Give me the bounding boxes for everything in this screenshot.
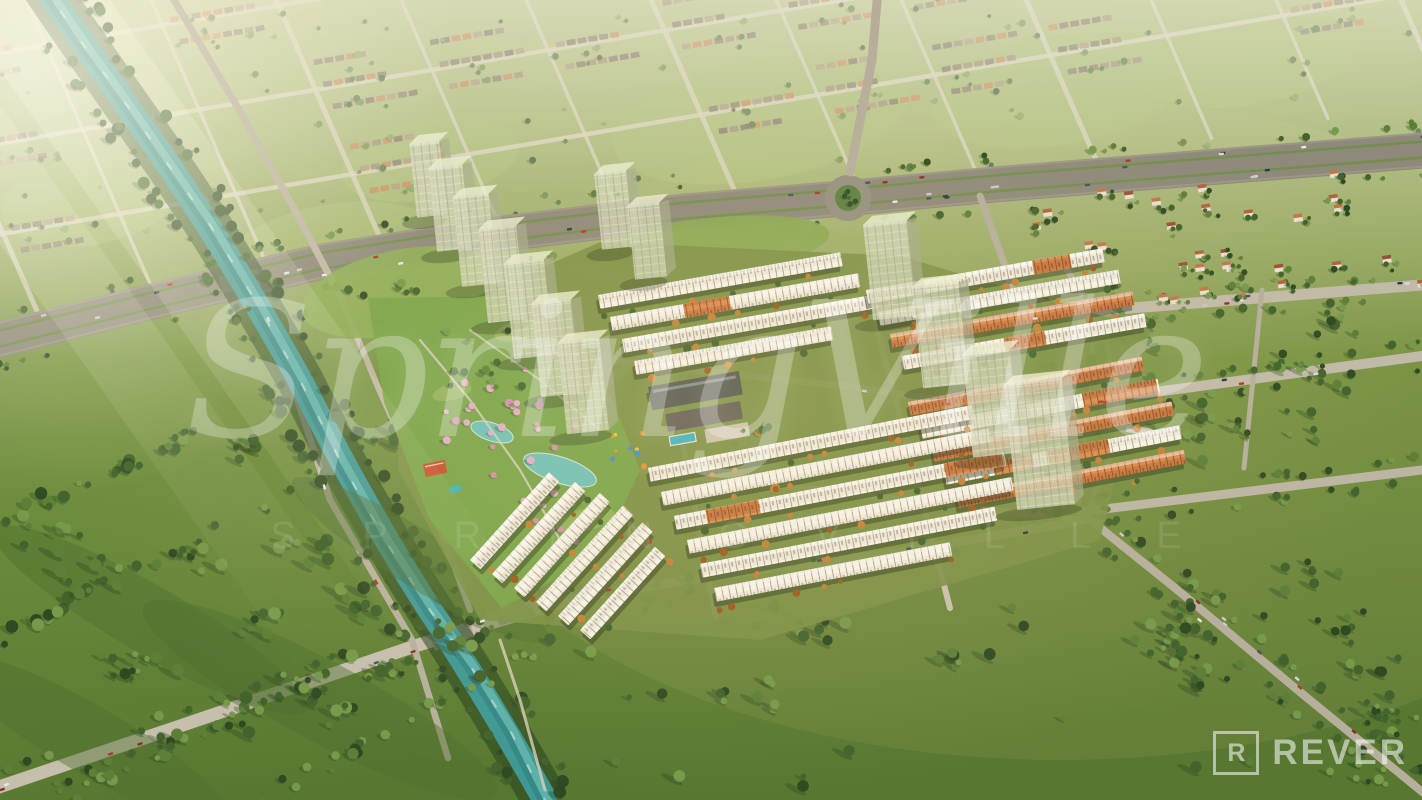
aerial-scene xyxy=(0,0,1422,800)
lighting-effects xyxy=(0,0,1422,800)
aerial-render: SpringVille S P R I N G V I L L E R REVE… xyxy=(0,0,1422,800)
